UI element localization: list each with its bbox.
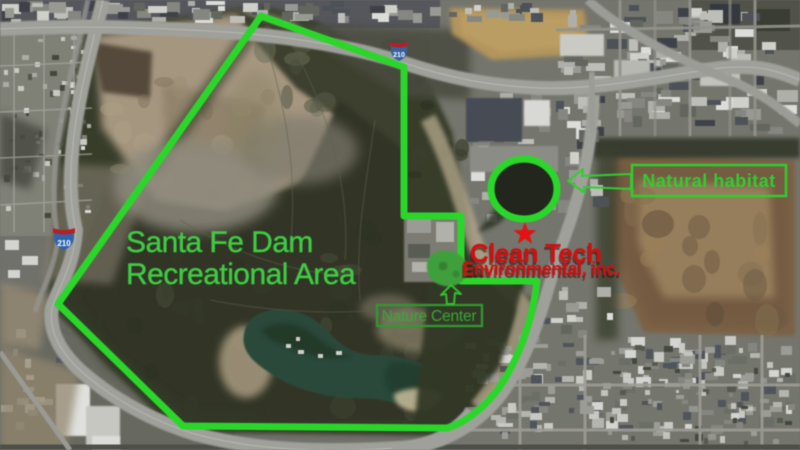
svg-text:Recreational Area: Recreational Area [126,258,356,291]
svg-text:Nature Center: Nature Center [382,308,477,325]
svg-text:210: 210 [393,52,405,59]
svg-text:Santa Fe Dam: Santa Fe Dam [126,226,313,259]
svg-text:210: 210 [57,239,71,248]
svg-text:Natural habitat: Natural habitat [642,171,776,191]
svg-text:Environmental, inc.: Environmental, inc. [462,259,620,279]
